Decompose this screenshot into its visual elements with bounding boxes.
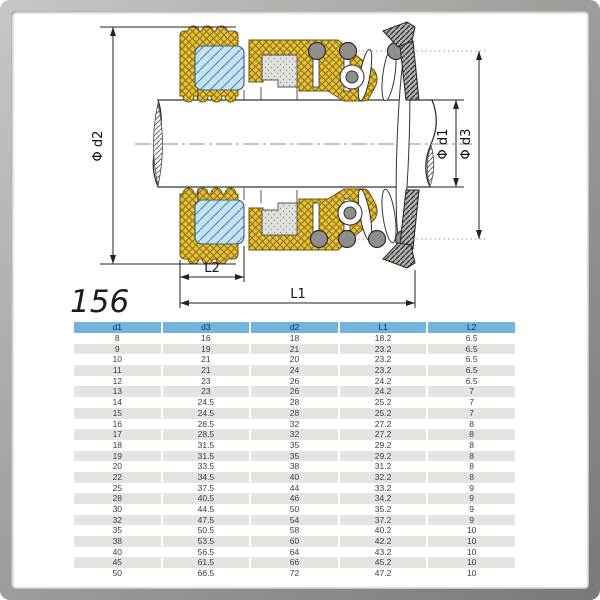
table-cell: 8 — [428, 461, 515, 472]
table-cell: 8 — [428, 440, 515, 451]
table-cell: 34.5 — [163, 472, 250, 483]
table-cell: 50 — [74, 568, 161, 579]
table-cell: 21 — [163, 365, 250, 376]
table-cell: 35 — [251, 440, 338, 451]
table-cell: 19 — [74, 451, 161, 462]
table-cell: 20 — [251, 354, 338, 365]
table-cell: 24.2 — [340, 386, 427, 397]
table-cell: 24.2 — [340, 376, 427, 387]
table-cell: 40.5 — [163, 493, 250, 504]
table-row: 4056.56443.210 — [74, 547, 515, 558]
table-cell: 20 — [74, 461, 161, 472]
table-cell: 31.2 — [340, 461, 427, 472]
table-cell: 21 — [163, 354, 250, 365]
table-cell: 56.5 — [163, 547, 250, 558]
table-cell: 37.5 — [163, 483, 250, 494]
table-cell: 45.2 — [340, 557, 427, 568]
table-cell: 43.2 — [340, 547, 427, 558]
table-cell: 35.2 — [340, 504, 427, 515]
table-cell: 60 — [251, 536, 338, 547]
table-cell: 28.5 — [163, 419, 250, 430]
table-cell: 10 — [428, 536, 515, 547]
spec-table-body: 8161818.26.59192123.26.510212023.26.5112… — [74, 333, 515, 579]
table-cell: 13 — [74, 386, 161, 397]
table-row: 1628.53227.28 — [74, 419, 515, 430]
dim-label-l2: L2 — [204, 261, 220, 276]
table-cell: 19 — [163, 344, 250, 355]
table-cell: 40 — [74, 547, 161, 558]
table-cell: 53.5 — [163, 536, 250, 547]
table-cell: 6.5 — [428, 333, 515, 344]
table-cell: 66.5 — [163, 568, 250, 579]
table-row: 3853.56042.210 — [74, 536, 515, 547]
seat-lower — [262, 203, 297, 235]
table-cell: 10 — [428, 525, 515, 536]
table-cell: 30 — [74, 504, 161, 515]
table-row: 1831.53529.28 — [74, 440, 515, 451]
table-row: 2033.53831.28 — [74, 461, 515, 472]
table-cell: 23 — [163, 376, 250, 387]
column-header: L2 — [428, 322, 515, 333]
table-row: 1424.52825.27 — [74, 397, 515, 408]
table-cell: 6.5 — [428, 354, 515, 365]
dim-label-d2: Φ d2 — [91, 131, 106, 162]
column-header: d3 — [163, 322, 250, 333]
table-cell: 17 — [74, 429, 161, 440]
table-cell: 72 — [251, 568, 338, 579]
table-cell: 47.5 — [163, 515, 250, 526]
table-cell: 24.5 — [163, 408, 250, 419]
table-row: 10212023.26.5 — [74, 354, 515, 365]
table-cell: 32 — [74, 515, 161, 526]
table-cell: 23.2 — [340, 365, 427, 376]
table-cell: 44.5 — [163, 504, 250, 515]
table-cell: 8 — [428, 472, 515, 483]
table-cell: 9 — [428, 483, 515, 494]
table-row: 5066.57247.210 — [74, 568, 515, 579]
table-cell: 9 — [428, 515, 515, 526]
seat-gap-lower — [261, 190, 297, 203]
table-cell: 42.2 — [340, 536, 427, 547]
table-cell: 28.5 — [163, 429, 250, 440]
table-cell: 33.5 — [163, 461, 250, 472]
table-cell: 28 — [74, 493, 161, 504]
table-cell: 23 — [163, 386, 250, 397]
table-cell: 50 — [251, 504, 338, 515]
spec-table-header: d1d3d2L1L2 — [74, 322, 515, 333]
table-cell: 28 — [251, 397, 338, 408]
table-cell: 64 — [251, 547, 338, 558]
table-cell: 18 — [251, 333, 338, 344]
table-cell: 10 — [74, 354, 161, 365]
dim-label-d3: Φ d3 — [459, 129, 474, 160]
table-cell: 9 — [74, 344, 161, 355]
table-cell: 23.2 — [340, 354, 427, 365]
table-cell: 7 — [428, 397, 515, 408]
table-cell: 8 — [74, 333, 161, 344]
table-cell: 8 — [428, 451, 515, 462]
table-cell: 44 — [251, 483, 338, 494]
table-row: 1524.52825.27 — [74, 408, 515, 419]
table-cell: 40.2 — [340, 525, 427, 536]
table-cell: 18 — [74, 440, 161, 451]
table-cell: 23.2 — [340, 344, 427, 355]
table-cell: 27.2 — [340, 429, 427, 440]
table-cell: 54 — [251, 515, 338, 526]
drawing-sheet: Φ d2 Φ d1 Φ d3 L2 — [11, 11, 589, 589]
table-row: 1728.53227.28 — [74, 429, 515, 440]
table-cell: 24.5 — [163, 397, 250, 408]
table-cell: 35 — [74, 525, 161, 536]
table-row: 12232624.26.5 — [74, 376, 515, 387]
column-header: d1 — [74, 322, 161, 333]
table-cell: 18.2 — [340, 333, 427, 344]
table-row: 2840.54634.29 — [74, 493, 515, 504]
table-cell: 40 — [251, 472, 338, 483]
table-cell: 38 — [74, 536, 161, 547]
table-cell: 38 — [251, 461, 338, 472]
table-cell: 66 — [251, 557, 338, 568]
table-cell: 32 — [251, 429, 338, 440]
table-cell: 26 — [251, 376, 338, 387]
dimension-d3 — [476, 51, 482, 239]
seat-gap-upper — [261, 87, 297, 100]
table-cell: 6.5 — [428, 344, 515, 355]
table-cell: 31.5 — [163, 440, 250, 451]
table-cell: 21 — [251, 344, 338, 355]
table-row: 11212423.26.5 — [74, 365, 515, 376]
table-row: 1931.53529.28 — [74, 451, 515, 462]
seal-face-upper — [195, 46, 244, 90]
table-cell: 61.5 — [163, 557, 250, 568]
table-cell: 6.5 — [428, 376, 515, 387]
table-row: 3044.55035.29 — [74, 504, 515, 515]
table-cell: 34.2 — [340, 493, 427, 504]
table-cell: 8 — [428, 429, 515, 440]
table-row: 8161818.26.5 — [74, 333, 515, 344]
table-cell: 50.5 — [163, 525, 250, 536]
column-header: d2 — [251, 322, 338, 333]
dim-label-l1: L1 — [290, 287, 306, 302]
table-cell: 7 — [428, 408, 515, 419]
table-cell: 15 — [74, 408, 161, 419]
table-cell: 47.2 — [340, 568, 427, 579]
table-cell: 10 — [428, 557, 515, 568]
table-row: 13232624.27 — [74, 386, 515, 397]
table-row: 3550.55840.210 — [74, 525, 515, 536]
table-cell: 25.2 — [340, 408, 427, 419]
table-row: 3247.55437.29 — [74, 515, 515, 526]
model-number: 156 — [70, 284, 129, 320]
table-row: 9192123.26.5 — [74, 344, 515, 355]
column-header: L1 — [340, 322, 427, 333]
table-cell: 14 — [74, 397, 161, 408]
table-cell: 25.2 — [340, 397, 427, 408]
table-row: 4561.56645.210 — [74, 557, 515, 568]
table-cell: 45 — [74, 557, 161, 568]
table-cell: 12 — [74, 376, 161, 387]
table-cell: 58 — [251, 525, 338, 536]
table-cell: 37.2 — [340, 515, 427, 526]
spec-table: d1d3d2L1L2 8161818.26.59192123.26.510212… — [74, 322, 515, 579]
table-cell: 7 — [428, 386, 515, 397]
table-cell: 6.5 — [428, 365, 515, 376]
seat-upper — [262, 55, 297, 87]
table-cell: 25 — [74, 483, 161, 494]
table-cell: 29.2 — [340, 451, 427, 462]
table-row: 2234.54032.28 — [74, 472, 515, 483]
table-cell: 31.5 — [163, 451, 250, 462]
table-cell: 11 — [74, 365, 161, 376]
photo-frame: Φ d2 Φ d1 Φ d3 L2 — [0, 0, 600, 600]
table-cell: 29.2 — [340, 440, 427, 451]
seal-face-lower — [195, 200, 244, 244]
table-cell: 8 — [428, 419, 515, 430]
table-cell: 10 — [428, 568, 515, 579]
table-cell: 24 — [251, 365, 338, 376]
table-cell: 32.2 — [340, 472, 427, 483]
dim-label-d1: Φ d1 — [436, 129, 451, 160]
table-cell: 33.2 — [340, 483, 427, 494]
table-cell: 9 — [428, 504, 515, 515]
table-cell: 9 — [428, 493, 515, 504]
table-cell: 16 — [163, 333, 250, 344]
table-cell: 26 — [251, 386, 338, 397]
table-cell: 46 — [251, 493, 338, 504]
table-row: 2537.54433.29 — [74, 483, 515, 494]
table-cell: 32 — [251, 419, 338, 430]
table-cell: 22 — [74, 472, 161, 483]
table-cell: 35 — [251, 451, 338, 462]
table-cell: 28 — [251, 408, 338, 419]
seal-cross-section-diagram: Φ d2 Φ d1 Φ d3 L2 — [11, 11, 589, 333]
table-cell: 16 — [74, 419, 161, 430]
table-cell: 27.2 — [340, 419, 427, 430]
table-cell: 10 — [428, 547, 515, 558]
